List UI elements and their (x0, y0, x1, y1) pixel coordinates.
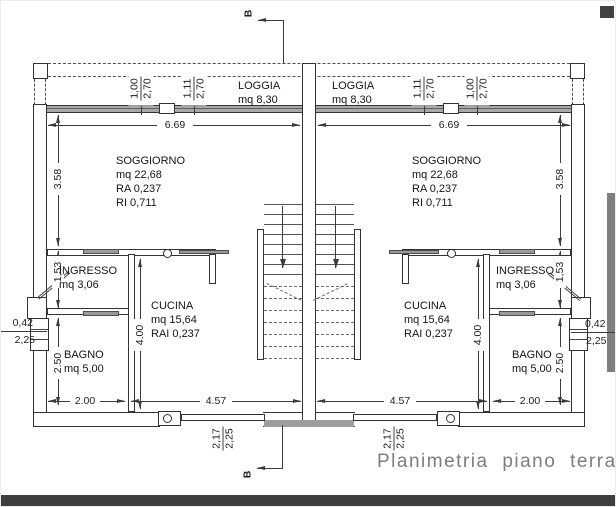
stair-rail-left (257, 229, 264, 360)
room-label-soggiorno-left: SOGGIORNO mq 22,68 RA 0,237 RI 0,711 (116, 154, 185, 210)
dim-side-window-height-left: 2,25 (7, 334, 35, 346)
room-area: mq 15,64 (404, 313, 453, 327)
room-area: mq 8,30 (332, 93, 374, 107)
section-label-bottom: B (241, 467, 254, 483)
sliding-door-cucina-left (179, 250, 229, 254)
dim-entry-width: 2,17 (211, 426, 224, 450)
room-label-soggiorno-right: SOGGIORNO mq 22,68 RA 0,237 RI 0,711 (412, 154, 481, 210)
room-rai: RAI 0,237 (404, 327, 453, 341)
dim-window-a-width: 1,00 (129, 76, 142, 100)
room-ri: RI 0,711 (116, 196, 185, 210)
room-name: INGRESSO (496, 264, 554, 278)
room-name: BAGNO (512, 348, 552, 362)
dim-cucina-width-left: 4.57 (200, 395, 232, 407)
exterior-wall-left (33, 104, 47, 427)
dim-loggia-width-left: 6.69 (157, 119, 193, 131)
dim-window-b-left: 1,11 2,70 (182, 72, 207, 106)
loggia-dashed-side (34, 79, 35, 105)
stair-dashed-tread (316, 298, 354, 299)
room-name: INGRESSO (59, 264, 117, 278)
stair-dashed-tread (316, 334, 354, 335)
room-label-ingresso-left: INGRESSO mq 3,06 (59, 264, 117, 292)
dim-window-b-width: 1,11 (182, 77, 195, 101)
dim-bagno-width-right: 2.00 (515, 395, 545, 407)
room-area: mq 5,00 (64, 362, 104, 376)
dim-soggiorno-depth-right: 3.58 (554, 163, 566, 195)
dim-bagno-depth-left: 2.50 (52, 347, 64, 379)
stair-dashed-tread (264, 334, 302, 335)
loggia-dashed-side (583, 79, 584, 105)
section-label-top: B (242, 6, 255, 22)
stair-dashed-tread (316, 286, 354, 287)
dim-entry-width: 2,17 (382, 426, 395, 450)
dim-side-window-bar-left (1, 331, 47, 332)
stair-direction-arrow-left (282, 206, 283, 268)
stair-rail-right (354, 229, 361, 360)
dim-side-window-height-right: 2,25 (586, 335, 614, 347)
dim-side-window-width-left: 0,42 (5, 317, 33, 329)
room-ri: RI 0,711 (412, 196, 481, 210)
room-name: BAGNO (64, 348, 104, 362)
sliding-door-cucina-right (389, 250, 439, 254)
pillar-top-right (570, 63, 585, 79)
sliding-door-ingresso-right (499, 249, 535, 254)
entry-door-panel-right (353, 414, 437, 421)
room-area: mq 15,64 (151, 313, 200, 327)
stair-direction-arrow-right (335, 206, 336, 268)
room-name: SOGGIORNO (116, 154, 185, 168)
dim-window-b-height: 2,70 (425, 76, 437, 100)
room-name: SOGGIORNO (412, 154, 481, 168)
section-arrow-top (258, 20, 284, 21)
wall-return-left (209, 254, 216, 284)
dim-cucina-depth-right: 4.00 (472, 319, 484, 351)
room-area: mq 22,68 (412, 168, 481, 182)
glass-door-right (443, 103, 459, 114)
room-area: mq 3,06 (496, 278, 554, 292)
room-name: CUCINA (151, 299, 200, 313)
dim-loggia-width-right: 6.69 (431, 119, 467, 131)
pillar-top-left (33, 63, 48, 79)
stair-dashed-tread (264, 322, 302, 323)
dim-window-b-right: 1,11 2,70 (412, 72, 437, 106)
entry-step-slab (264, 420, 354, 427)
room-name: LOGGIA (332, 79, 374, 93)
stair-dashed-tread (316, 346, 354, 347)
sliding-door-bagno-left (83, 311, 119, 316)
dim-entry-height: 2,25 (224, 426, 236, 450)
section-line-top (283, 20, 284, 64)
sliding-door-bagno-right (499, 311, 535, 316)
door-knob-entry-left (163, 414, 172, 423)
room-ra: RA 0,237 (116, 182, 185, 196)
stair-dashed-tread (264, 310, 302, 311)
door-knob-entry-right (446, 414, 455, 423)
exterior-wall-right (571, 104, 585, 427)
stair-dashed-tread (264, 358, 302, 359)
stair-dashed-tread (316, 310, 354, 311)
dim-entry-height: 2,25 (395, 426, 407, 450)
room-area: mq 8,30 (238, 93, 280, 107)
room-area: mq 22,68 (116, 168, 185, 182)
dim-cucina-depth-left: 4.00 (134, 319, 146, 351)
dim-side-window-width-right: 0,42 (585, 318, 613, 330)
dim-cucina-width-right: 4.57 (384, 395, 416, 407)
loggia-dashed-side (572, 79, 573, 105)
footer-bar (1, 495, 616, 507)
floor-plan: 6.69 6.69 3.58 3.58 1,53 1,53 2.50 2.50 … (0, 0, 616, 507)
dim-side-window-bar-right (571, 332, 616, 333)
dim-soggiorno-depth-left: 3.58 (52, 163, 64, 195)
dim-ingresso-depth-right: 1,53 (554, 256, 566, 288)
door-jamb-right (571, 297, 591, 319)
room-label-cucina-left: CUCINA mq 15,64 RAI 0,237 (151, 299, 200, 341)
dim-window-a-right: 1,00 2,70 (465, 72, 490, 106)
dim-bagno-width-left: 2.00 (70, 395, 100, 407)
wall-cucina-right (483, 254, 490, 412)
door-jamb-left (27, 297, 47, 319)
room-label-loggia-left: LOGGIA mq 8,30 (238, 79, 280, 107)
room-label-loggia-right: LOGGIA mq 8,30 (332, 79, 374, 107)
stair-dashed-tread (316, 358, 354, 359)
dim-entry-left: 2,17 2,25 (211, 422, 236, 456)
page-title: Planimetria piano terra (377, 451, 616, 473)
dim-window-a-height: 2,70 (478, 76, 490, 100)
room-area: mq 5,00 (512, 362, 552, 376)
room-rai: RAI 0,237 (151, 327, 200, 341)
room-label-bagno-right: BAGNO mq 5,00 (512, 348, 552, 376)
room-label-ingresso-right: INGRESSO mq 3,06 (496, 264, 554, 292)
party-wall-center (302, 63, 316, 427)
room-ra: RA 0,237 (412, 182, 481, 196)
dim-window-b-height: 2,70 (195, 76, 207, 100)
room-name: LOGGIA (238, 79, 280, 93)
door-knob-cucina-right (447, 249, 456, 258)
dim-window-a-left: 1,00 2,70 (129, 72, 154, 106)
dim-window-a-width: 1,00 (465, 76, 478, 100)
dim-window-b-width: 1,11 (412, 77, 425, 101)
stair-dashed-tread (316, 322, 354, 323)
entry-door-panel-left (181, 414, 265, 421)
stair-dashed-tread (264, 286, 302, 287)
stair-dashed-tread (264, 346, 302, 347)
section-line-bottom (282, 425, 283, 469)
sliding-door-ingresso-left (83, 249, 119, 254)
room-name: CUCINA (404, 299, 453, 313)
glass-door-left (159, 103, 175, 114)
section-arrow-bottom (257, 468, 283, 469)
room-label-bagno-left: BAGNO mq 5,00 (64, 348, 104, 376)
room-area: mq 3,06 (59, 278, 117, 292)
corner-square (600, 6, 614, 18)
dim-bagno-depth-right: 2.50 (554, 347, 566, 379)
room-label-cucina-right: CUCINA mq 15,64 RAI 0,237 (404, 299, 453, 341)
loggia-dashed-side (45, 79, 46, 105)
door-knob-cucina-left (163, 249, 172, 258)
dim-window-a-height: 2,70 (142, 76, 154, 100)
wall-return-right (402, 254, 409, 284)
